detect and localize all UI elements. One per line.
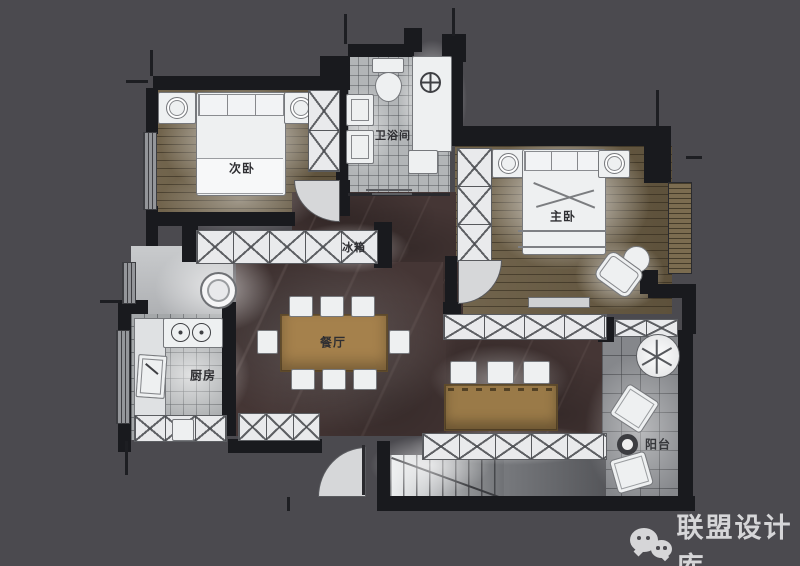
wechat-icon [630,525,667,565]
wardrobe-cabinet [457,148,492,262]
room-label-secondary-bedroom: 次卧 [229,160,255,177]
room-label-kitchen: 厨房 [190,367,216,384]
dining-chair [320,296,344,317]
entry-door-arc [318,447,366,497]
dining-chair [351,296,375,317]
shower-drain [420,72,441,93]
bathroom-sink [346,94,374,126]
dimension-tick [100,300,120,303]
bay-window-louver [668,182,692,274]
toilet-tank [372,58,404,73]
dining-chair [257,330,278,354]
wall-segment [320,56,350,90]
room-label-master-bedroom: 主卧 [550,208,576,225]
wechat-eye [646,536,650,540]
lamp [604,153,625,174]
bar-table [444,384,558,431]
dining-chair [289,296,313,317]
bed-end-bench [518,230,606,248]
entry-door-leaf [362,445,365,495]
room-label-balcony: 阳台 [645,436,671,453]
wall-segment [682,284,696,334]
dimension-tick [287,497,290,511]
dimension-tick [125,441,128,475]
south-cabinet-row [422,433,607,460]
window [143,132,157,210]
potted-plant [636,334,680,378]
watermark-brand-text: 联盟设计库 [676,506,800,566]
wall-segment [153,212,295,226]
bar-stool [487,361,514,384]
dining-west-cabinet [238,413,320,441]
dimension-tick [150,50,153,76]
wall-segment [377,441,390,503]
tv-console [528,297,590,308]
dining-chair [353,369,377,390]
bathroom-sink [346,130,374,164]
lamp [166,97,188,119]
decor-plate [200,272,237,309]
window [116,330,130,424]
wechat-eye [656,546,660,550]
bath-mat [408,150,438,174]
pillow-row [198,94,284,116]
room-label-dining: 餐厅 [320,334,346,351]
label-fridge: 冰箱 [342,239,366,255]
wall-segment [443,126,655,146]
watermark: 联盟设计库 [630,506,800,566]
bar-table-items [448,388,552,391]
kitchen-stool [172,419,194,441]
bar-stool [523,361,550,384]
dimension-tick [452,8,455,36]
wechat-eye [663,546,667,550]
dimension-tick [656,90,659,126]
dining-chair [389,330,410,354]
stove-burner [171,323,190,342]
wall-segment [404,28,422,52]
tv-wall-cabinet-row [443,314,607,340]
dimension-tick [344,14,347,44]
wardrobe-cabinet [308,90,340,172]
wall-segment [678,330,693,506]
stair-landing [504,455,606,498]
room-label-bathroom: 卫浴间 [375,127,411,143]
balcony-side-table [617,434,638,455]
kitchen-sink [136,354,168,399]
wall-segment [644,126,671,183]
floor-plan-image: 次卧 卫浴间 主卧 冰箱 餐厅 厨房 [0,0,800,566]
sliding-door-line [372,193,412,195]
stove-burner [192,323,211,342]
bar-stool [450,361,477,384]
window [122,262,136,304]
dimension-tick [126,80,148,83]
balcony-railing [614,319,678,337]
shower-counter [412,56,452,152]
wall-segment [146,88,158,134]
pillow-row [524,151,604,171]
lamp [498,153,519,174]
dining-chair [322,369,346,390]
sliding-door-line [366,189,412,191]
wall-segment [228,439,322,453]
wechat-eye [637,536,641,540]
dimension-tick [686,156,702,159]
dining-chair [291,369,315,390]
